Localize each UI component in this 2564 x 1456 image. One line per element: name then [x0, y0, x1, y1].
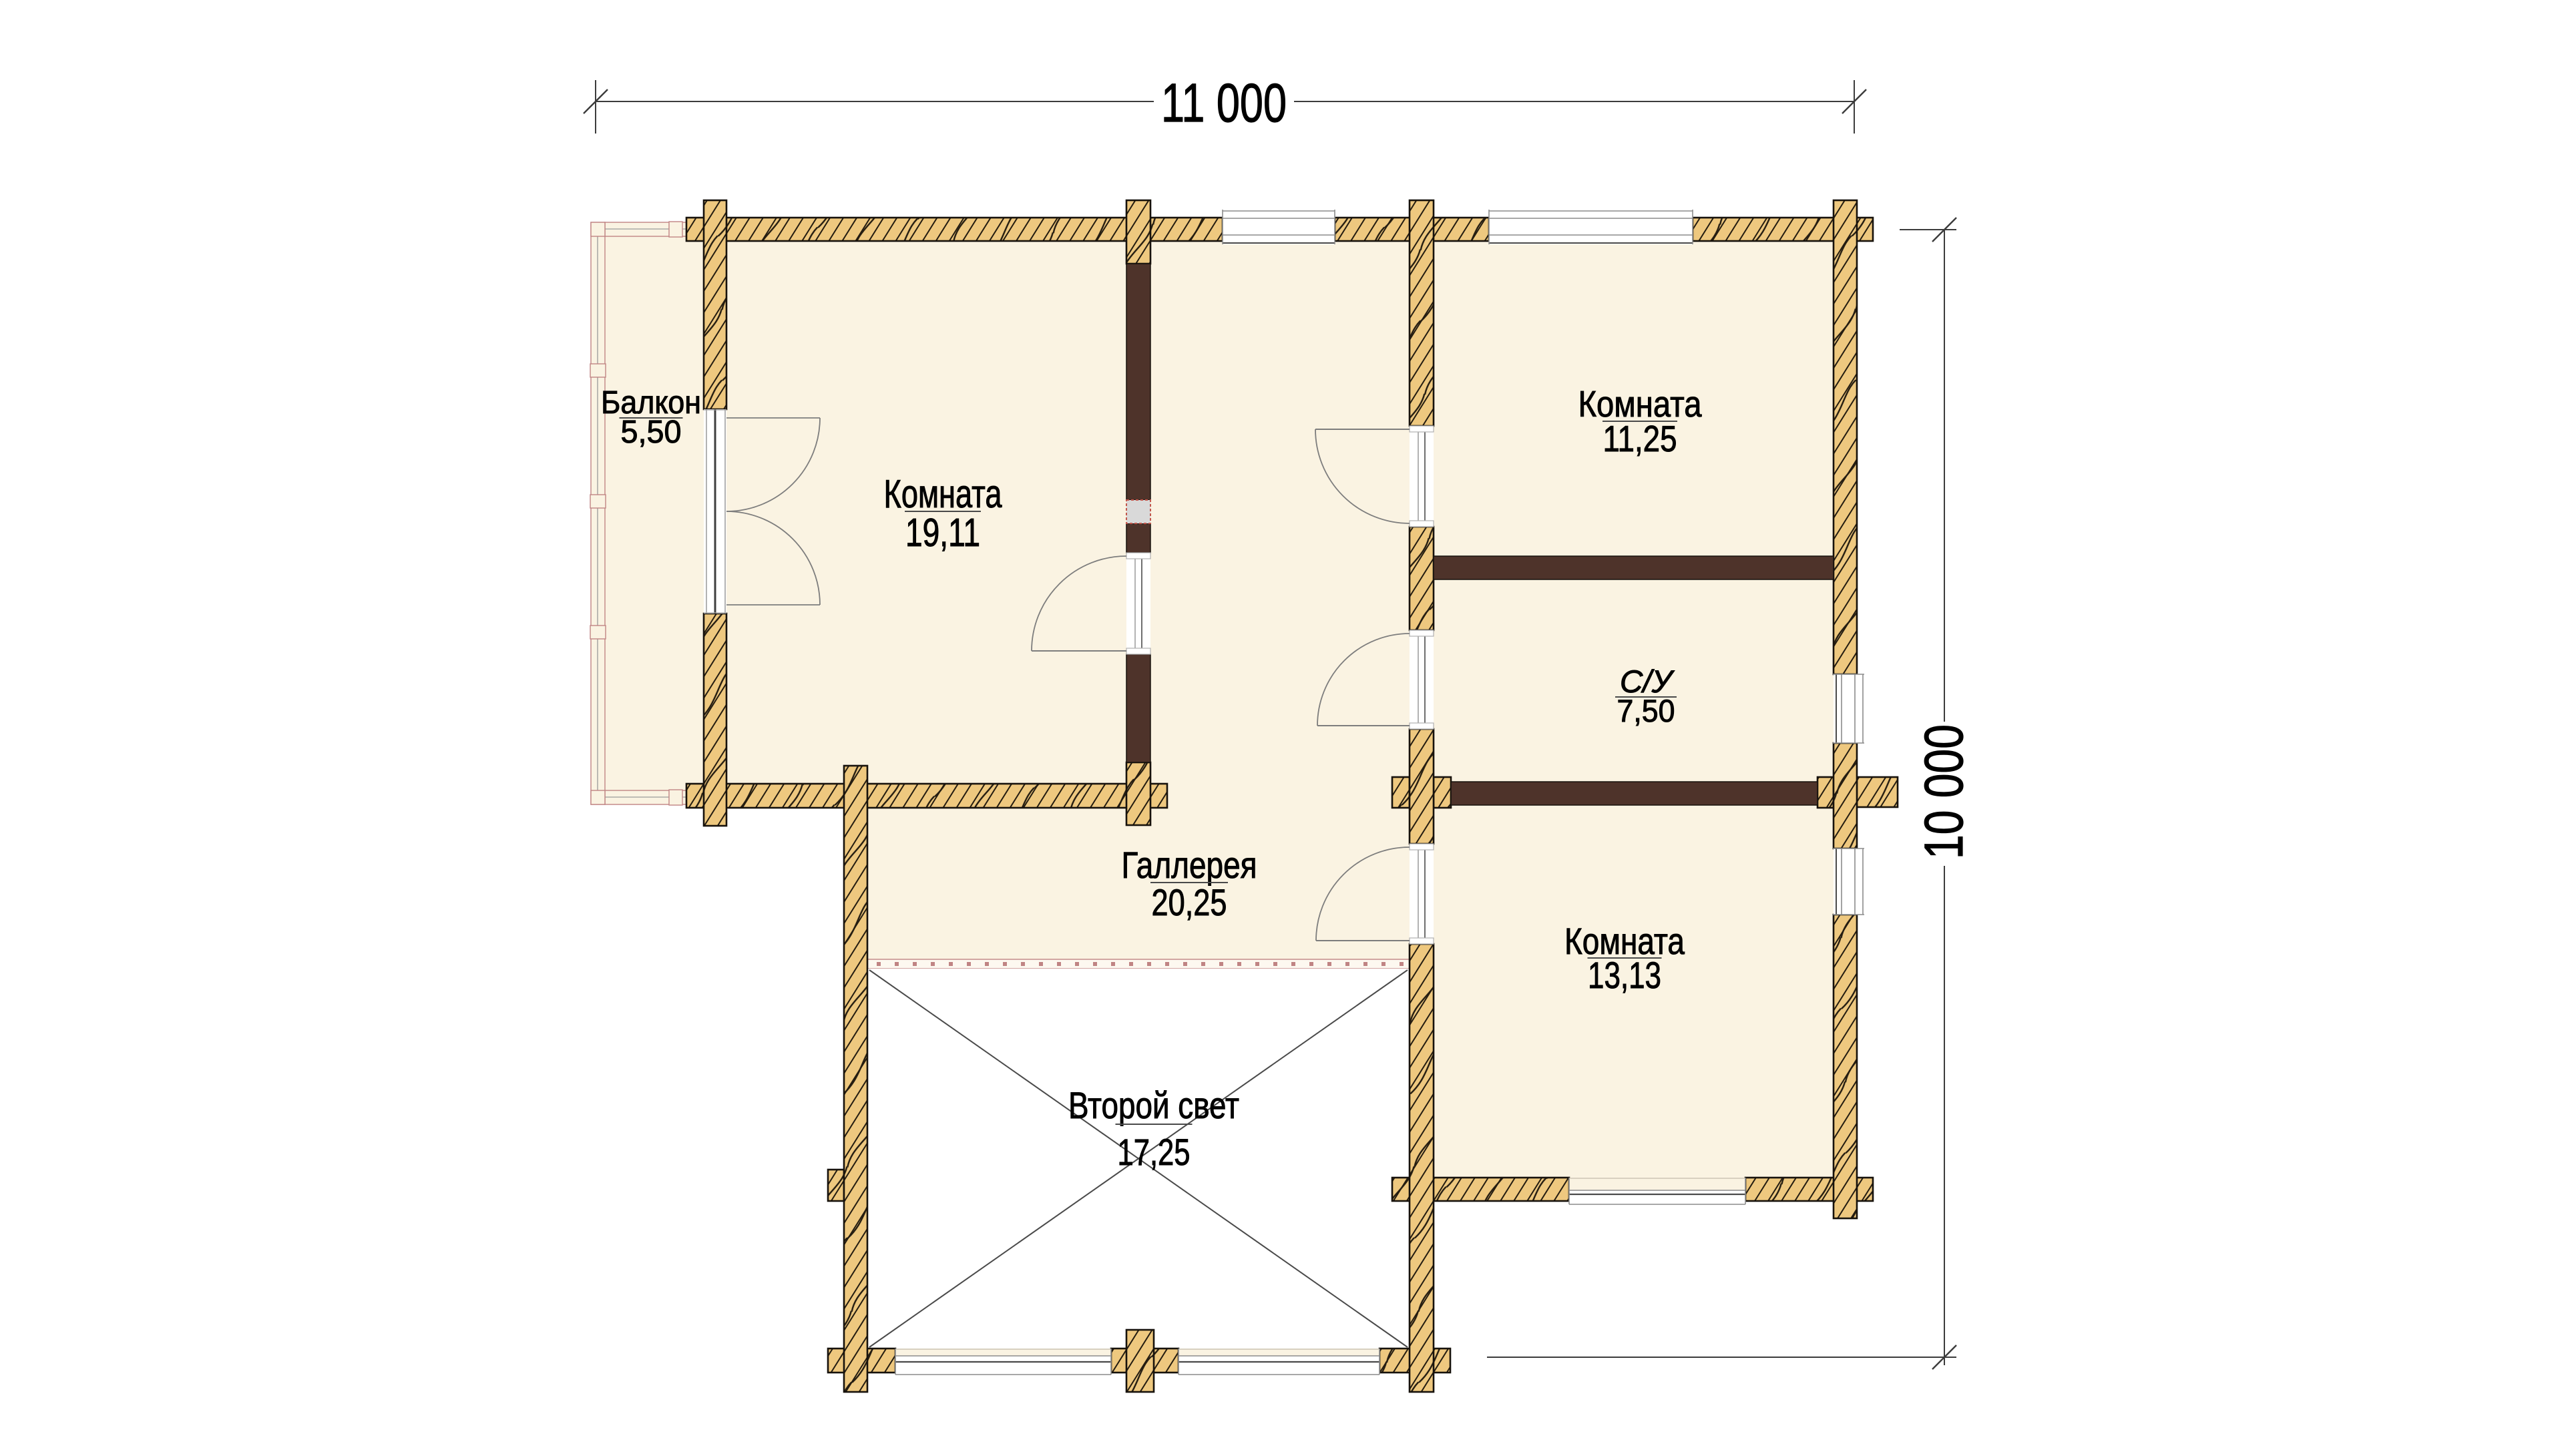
svg-text:Комната: Комната	[884, 472, 1002, 516]
svg-text:11,25: 11,25	[1603, 418, 1677, 459]
svg-text:11 000: 11 000	[1161, 73, 1287, 134]
svg-text:Второй свет: Второй свет	[1068, 1084, 1239, 1126]
svg-text:17,25: 17,25	[1118, 1131, 1191, 1173]
svg-text:10 000: 10 000	[1914, 724, 1974, 859]
svg-text:5,50: 5,50	[621, 415, 682, 450]
svg-text:13,13: 13,13	[1588, 954, 1661, 996]
svg-text:20,25: 20,25	[1152, 881, 1227, 923]
svg-text:Галлерея: Галлерея	[1122, 844, 1257, 886]
svg-text:19,11: 19,11	[905, 511, 980, 555]
svg-text:7,50: 7,50	[1617, 693, 1675, 728]
